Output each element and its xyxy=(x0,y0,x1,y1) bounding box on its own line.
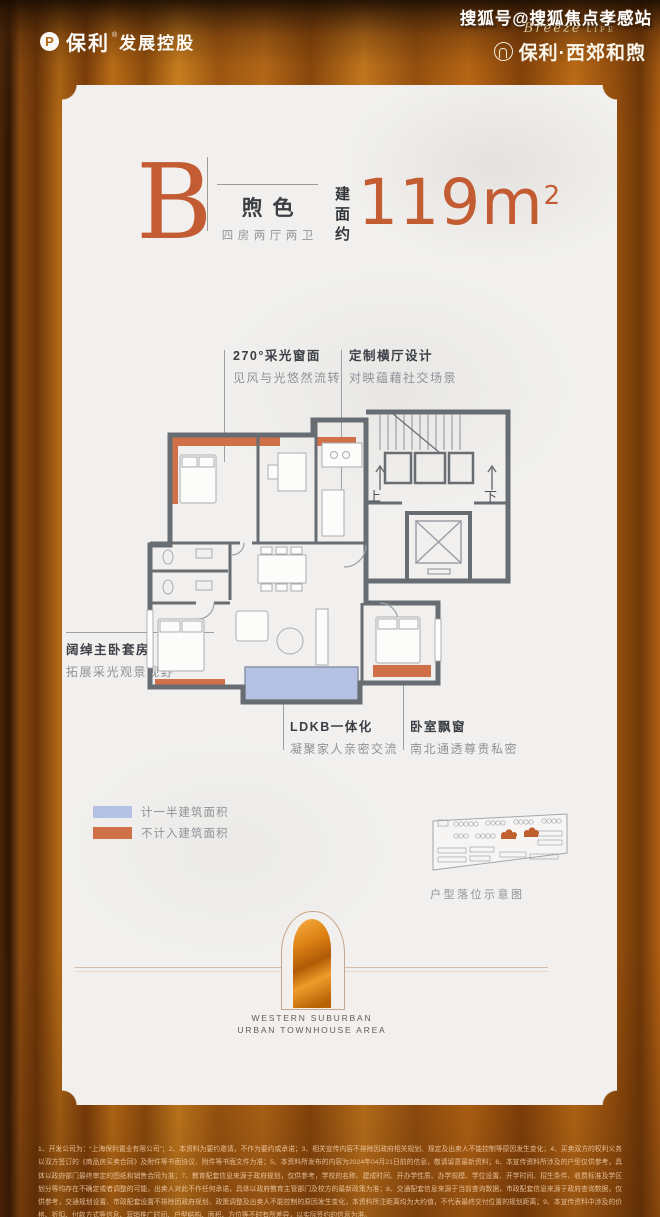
script-tagline: BreezeLIFE xyxy=(524,21,616,36)
stairs-up-label: 上 xyxy=(368,489,381,504)
stairs-down-label: 下 xyxy=(484,489,497,504)
area-value: 119m2 xyxy=(358,171,561,234)
unit-name: 煦色 xyxy=(217,192,318,222)
unit-layout: 四房两厅两卫 xyxy=(217,227,318,243)
brand-suffix: 发展控股 xyxy=(119,29,195,54)
elevator xyxy=(407,513,470,581)
legend-half-area: 计一半建筑面积 xyxy=(93,804,229,820)
project-logo: BreezeLIFE 保利·西郊和煦 xyxy=(494,21,646,65)
furniture xyxy=(158,443,420,671)
poly-development-logo: P 保利 ® 发展控股 xyxy=(40,27,195,56)
registered-mark: ® xyxy=(112,32,117,39)
poster-page: 搜狐号@搜狐焦点孝感站 P 保利 ® 发展控股 BreezeLIFE 保利·西郊… xyxy=(0,0,660,1217)
project-name: 保利·西郊和煦 xyxy=(519,38,646,65)
legend-swatch-orange xyxy=(93,827,132,839)
legend-no-area: 不计入建筑面积 xyxy=(93,825,229,841)
area-prefix: 建面约 xyxy=(331,186,352,246)
floor-plan: 上 下 xyxy=(140,395,540,710)
poly-logo-icon: P xyxy=(40,32,59,51)
legend-swatch-blue xyxy=(93,806,132,818)
annotation-bay-window: 卧室飘窗 南北通透尊贵私密 xyxy=(410,716,570,757)
unit-name-block: 煦色 四房两厅两卫 xyxy=(217,184,318,243)
siteplan-caption: 户型落位示意图 xyxy=(430,886,525,902)
unit-letter: B xyxy=(136,150,212,254)
stairs xyxy=(376,413,496,490)
emblem-caption: WESTERN SUBURBAN URBAN TOWNHOUSE AREA xyxy=(212,1012,412,1037)
arch-emblem-icon xyxy=(293,919,331,1008)
site-plan xyxy=(430,812,570,874)
title-divider xyxy=(207,157,208,231)
brand-name: 保利 xyxy=(66,27,110,56)
legal-disclaimer: 1、开发公司为：“上海保利置业有限公司”；2、本资料为要约邀请，不作为要约或承诺… xyxy=(38,1143,622,1217)
annotation-custom-hall: 定制横厅设计 对映蕴藉社交场景 xyxy=(349,345,509,386)
balcony-half-area xyxy=(245,667,358,700)
xijiao-emblem-icon xyxy=(494,42,513,61)
